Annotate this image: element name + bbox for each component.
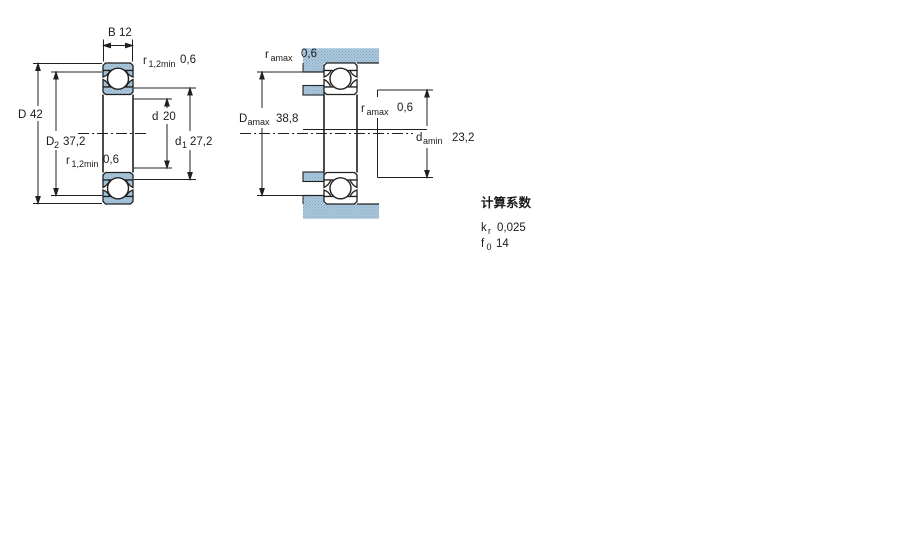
- factor-kr: k r 0,025: [481, 222, 526, 237]
- ball-bottom: [108, 178, 129, 199]
- dim-d1-label: d 1 27,2: [175, 136, 212, 151]
- calculation-factors-title: 计算系数: [481, 195, 532, 210]
- right-figure-mounting-drawing: D amax 38,8 d amin 23,2 r amax 0,6 r: [239, 48, 474, 219]
- ball-top: [108, 68, 129, 89]
- dim-D2-label: D 2 37,2: [46, 136, 85, 151]
- dim-Damax-label: D amax 38,8: [239, 113, 298, 128]
- ball-bottom: [330, 178, 351, 199]
- dim-B-lines: [104, 40, 133, 62]
- dim-D-label: D 42: [18, 109, 43, 121]
- left-figure-bearing-cross-section: B 12 D 42 D 2 37,2: [18, 27, 212, 204]
- bearing-drawing-page: { "left_view": { "width": {"sym": "B", "…: [0, 0, 900, 560]
- factor-f0: f 0 14: [481, 238, 509, 253]
- chamfer-r12min-top-label: r 1,2min 0,6: [143, 54, 196, 70]
- shaft-shoulder-bottom: [303, 172, 324, 182]
- dim-damin-label: d amin 23,2: [416, 132, 474, 147]
- fillet-ramax-mid-label: r amax 0,6: [361, 102, 413, 118]
- dim-D2-lines: [51, 72, 102, 196]
- chamfer-r12min-bottom-label: r 1,2min 0,6: [66, 154, 119, 170]
- shaft-shoulder-top: [303, 86, 324, 96]
- calculation-factors-block: 计算系数 k r 0,025 f 0 14: [481, 195, 532, 253]
- dim-D-lines: [33, 64, 102, 204]
- dim-d-label: d 20: [152, 111, 176, 123]
- ball-top: [330, 68, 351, 89]
- dim-B-label: B 12: [108, 27, 132, 39]
- technical-drawing-canvas: B 12 D 42 D 2 37,2: [0, 0, 900, 560]
